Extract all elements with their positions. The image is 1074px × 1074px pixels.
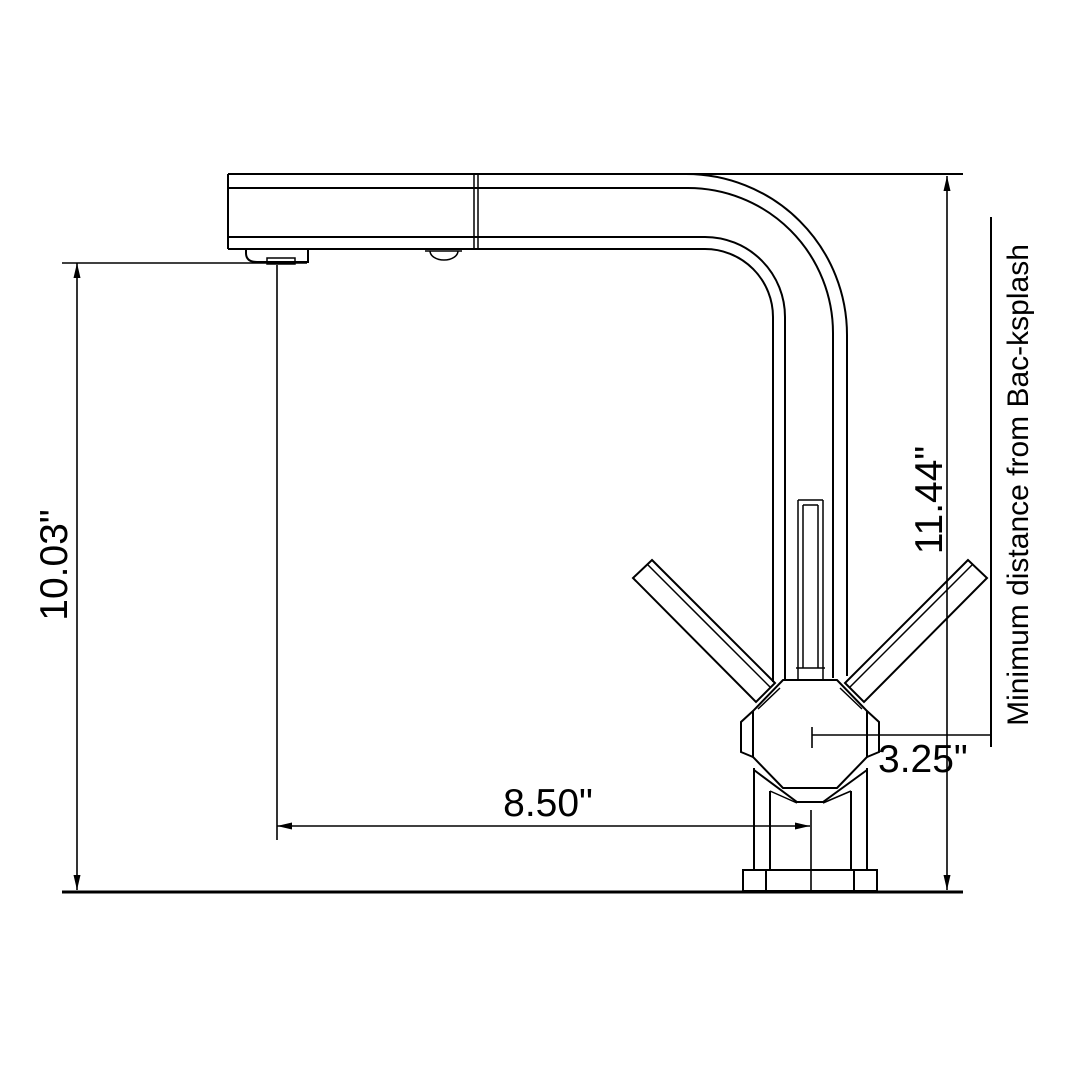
dimension-overall-height: 10.03"	[33, 263, 307, 890]
spout-inner-upper-line	[228, 188, 833, 678]
spout-button-bump	[430, 251, 458, 260]
aerator-outline	[246, 249, 308, 262]
octagon-front-face	[753, 680, 867, 788]
faucet-base	[743, 768, 877, 891]
arrowhead-up	[944, 176, 951, 191]
label-overall-height: 10.03"	[33, 509, 76, 620]
label-spout-top-height: 11.44"	[908, 446, 951, 555]
dimension-backsplash-distance: 3.25"	[812, 727, 991, 781]
dimension-spout-top-height: 11.44"	[908, 176, 951, 890]
handle-right	[840, 560, 987, 709]
handle-left-boss-line	[758, 688, 780, 709]
handle-left-bar	[633, 560, 775, 702]
cartridge-stem	[796, 500, 825, 680]
handle-right-boss-line	[840, 688, 862, 709]
spout-bottom-edge	[228, 249, 773, 682]
label-spout-reach: 8.50"	[503, 782, 593, 825]
arrowhead-down	[74, 875, 81, 890]
aerator	[246, 249, 308, 264]
backsplash-reference: Minimum distance from Bac-ksplash	[991, 217, 1035, 747]
handle-left	[633, 560, 780, 709]
octagon-left-facet	[741, 711, 753, 757]
faucet-dimension-diagram: 10.03" 8.50" 3.25" 11.44" Minimum d	[0, 0, 1074, 1074]
technical-drawing-canvas: 10.03" 8.50" 3.25" 11.44" Minimum d	[0, 0, 1074, 1074]
handle-right-bevel-line	[849, 565, 972, 688]
arrowhead-left	[277, 823, 292, 830]
arrowhead-up	[74, 263, 81, 278]
spout-inner-lower-line	[228, 237, 785, 681]
label-backsplash-distance: 3.25"	[878, 738, 968, 781]
faucet-spout	[228, 174, 963, 682]
base-flange	[743, 870, 877, 891]
arrowhead-right	[795, 823, 810, 830]
label-backsplash-note: Minimum distance from Bac-ksplash	[1002, 244, 1035, 726]
handle-left-bevel-line	[648, 565, 771, 688]
handle-right-bar	[845, 560, 987, 702]
dimension-spout-reach: 8.50"	[277, 265, 811, 891]
arrowhead-down	[944, 875, 951, 890]
